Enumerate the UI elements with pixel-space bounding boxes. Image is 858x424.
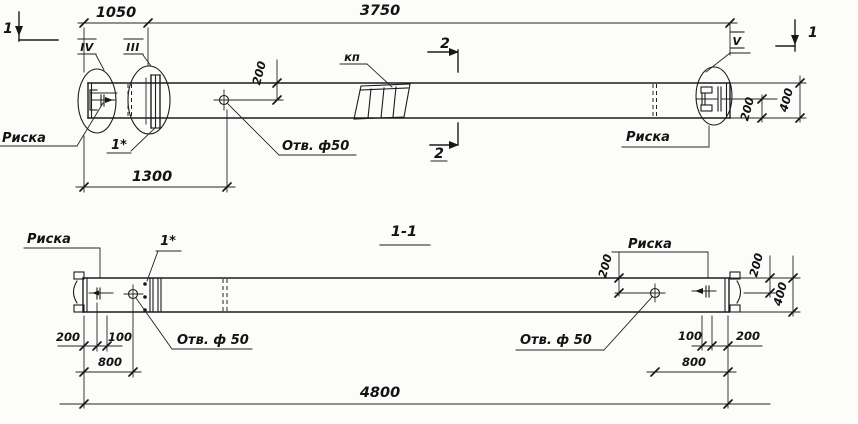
hole-note-bottom-right: Отв. ф 50	[516, 297, 652, 350]
dim-200-br: 200	[736, 329, 760, 343]
bolt-dot	[143, 282, 147, 286]
section2-label-top: 2	[440, 36, 450, 52]
riska-label-br: Риска	[628, 237, 672, 252]
dims-bottom-right: 100 200 800 200 400	[647, 252, 800, 408]
kp-marking: кп	[340, 50, 410, 119]
callout-III: III	[124, 39, 151, 66]
dim-400-right-bottom: 400	[770, 281, 790, 309]
technical-drawing-sheet: 1050 3750 1 1	[0, 0, 858, 424]
dim-800-right: 800	[682, 355, 706, 369]
riska-label-right: Риска	[626, 130, 670, 145]
section2-marker-bottom: 2	[430, 123, 459, 162]
section2-label-bottom: 2	[434, 146, 444, 162]
bolt-dot	[143, 295, 147, 299]
detail-left-end	[78, 66, 170, 134]
dim-3750: 3750	[360, 3, 400, 19]
dim-800-left: 800	[98, 355, 122, 369]
dim-100-bl: 100	[108, 330, 132, 344]
section-1-1-view: 1-1	[24, 224, 800, 408]
dim-1050-3750: 1050 3750	[78, 3, 737, 72]
top-view: 1050 3750 1 1	[0, 3, 818, 192]
callout-IV-label: IV	[80, 41, 95, 54]
dim-200-bl: 200	[56, 330, 80, 344]
section2-marker-top: 2	[428, 36, 459, 72]
left-features-bottom	[89, 282, 147, 312]
riska-label-bl: Риска	[27, 232, 71, 247]
dim-4800-label: 4800	[359, 385, 400, 401]
hole-top-view: 200	[214, 60, 283, 110]
pos1-label-bottom: 1*	[160, 234, 176, 249]
riska-note-top-right: Риска	[622, 126, 709, 147]
dim-100-br: 100	[678, 329, 702, 343]
riska-note-bottom-left: Риска	[24, 232, 100, 278]
right-features-bottom: Риска 200	[595, 237, 716, 302]
hole-note-bl-label: Отв. ф 50	[177, 333, 249, 348]
dim-1050: 1050	[96, 5, 136, 21]
section1-marker-right: 1	[776, 20, 818, 51]
kp-label: кп	[344, 50, 360, 64]
section1-label-right: 1	[808, 25, 818, 41]
detail-circle-III	[128, 66, 170, 134]
dim-200-br-inner: 200	[595, 253, 615, 280]
pos1-note-bottom: 1*	[147, 234, 181, 281]
section1-label-left: 1	[3, 21, 13, 37]
beam-drawing-svg: 1050 3750 1 1	[0, 0, 858, 424]
dim-4800: 4800	[60, 385, 770, 408]
pos1-note-top: 1*	[107, 128, 155, 153]
dims-bottom-left: 200 100 800	[56, 303, 141, 408]
right-bracket-tab-bottom	[730, 305, 740, 312]
dims-right-top: 200 400	[722, 76, 806, 122]
dim-200-far-right: 200	[746, 252, 766, 279]
callout-V-label: V	[732, 35, 742, 48]
callout-IV: IV	[78, 39, 104, 70]
hole-note-br-label: Отв. ф 50	[520, 333, 592, 348]
callout-III-label: III	[126, 41, 140, 54]
hole-note-top-label: Отв. ф50	[282, 139, 349, 154]
dim-1300-label: 1300	[132, 169, 172, 185]
section1-marker-left: 1	[3, 12, 58, 41]
section-title: 1-1	[391, 224, 417, 240]
riska-label: Риска	[2, 131, 46, 146]
beam-outline-bottom	[74, 272, 741, 312]
pos1-label: 1*	[111, 138, 127, 153]
dim-400-right-top: 400	[776, 87, 796, 115]
hole-note-top: Отв. ф50	[228, 104, 356, 155]
